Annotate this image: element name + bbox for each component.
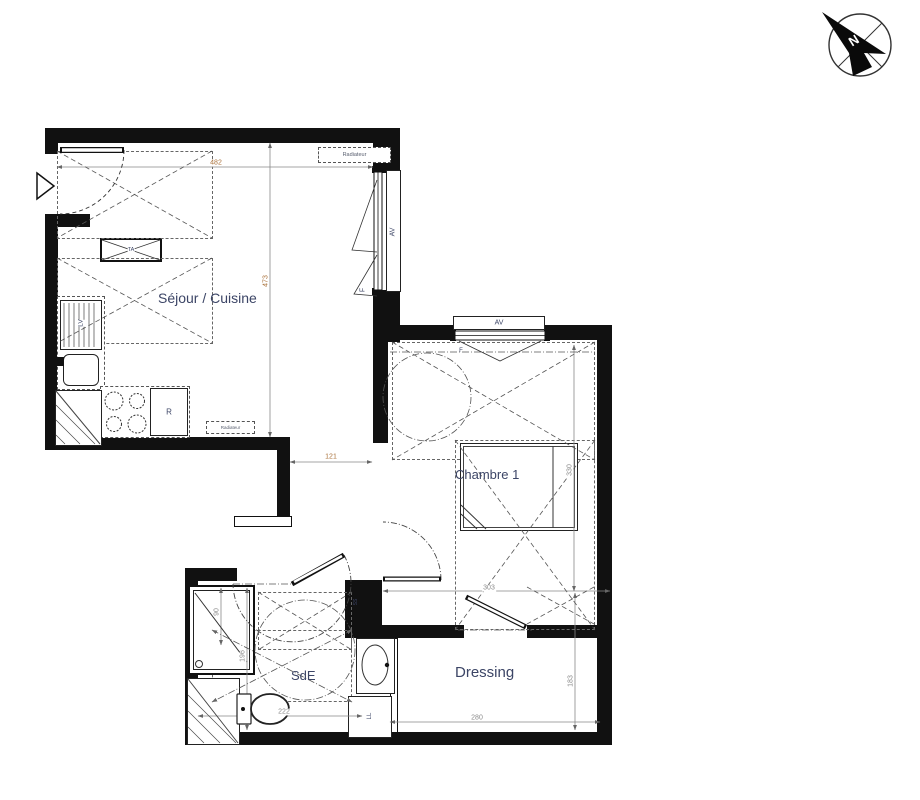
shaft-hatching: [56, 391, 238, 743]
kitchen-fixtures: [56, 240, 160, 433]
dim-dressing-height: 183: [568, 674, 575, 688]
entrance-arrow-icon: [37, 173, 54, 199]
room-label-chambre: Chambre 1: [455, 467, 519, 482]
dim-passage-width: 121: [324, 454, 338, 461]
switch-label: SS: [353, 599, 359, 606]
dim-chambre-height: 330: [567, 463, 574, 477]
bathroom-fixtures: [195, 593, 389, 724]
dim-sejour-width: 482: [209, 160, 223, 167]
radiator: Radiateur: [206, 421, 255, 434]
dim-chambre-width: 303: [482, 585, 496, 592]
shower-drain: [196, 661, 203, 668]
washing-machine-label: LL: [367, 713, 373, 720]
technical-panel-label: TA: [128, 247, 135, 253]
clearance-symbols: [212, 352, 595, 702]
bed-details: [461, 446, 553, 529]
room-label-sejour: Séjour / Cuisine: [158, 290, 257, 306]
entry-door-arc: [60, 150, 124, 214]
radiator-label: Radiateur: [221, 425, 241, 430]
radiator-label: Radiateur: [343, 152, 367, 158]
dim-sde-height: 196: [240, 649, 247, 663]
window-sill-label: AV: [495, 320, 504, 327]
bathroom-door-arc: [233, 555, 351, 642]
windows: [352, 172, 545, 361]
stove-burners: [105, 392, 146, 433]
sink-unit-label: LV: [78, 319, 85, 326]
bedroom-door-arc: [383, 522, 441, 580]
window-label: F: [459, 348, 463, 354]
dim-sde-width: 222: [277, 709, 291, 716]
dim-shower-width: 90: [214, 607, 221, 617]
fridge-label: R: [166, 408, 172, 417]
dim-dressing-width: 280: [470, 715, 484, 722]
dim-sejour-height: 473: [263, 274, 270, 288]
dimension-lines: [57, 143, 610, 730]
window-label: F: [360, 288, 367, 292]
door-swings: [60, 150, 526, 642]
floor-plan-canvas: Radiateur Radiateur: [0, 0, 920, 800]
room-label-dressing: Dressing: [455, 664, 514, 681]
radiator: Radiateur: [318, 147, 391, 163]
zone-cross-lines: [57, 151, 595, 650]
window-sill-label: AV: [390, 228, 397, 237]
tap: [56, 357, 64, 366]
room-label-sde: SdE: [291, 668, 316, 683]
washbasin: [362, 645, 388, 685]
